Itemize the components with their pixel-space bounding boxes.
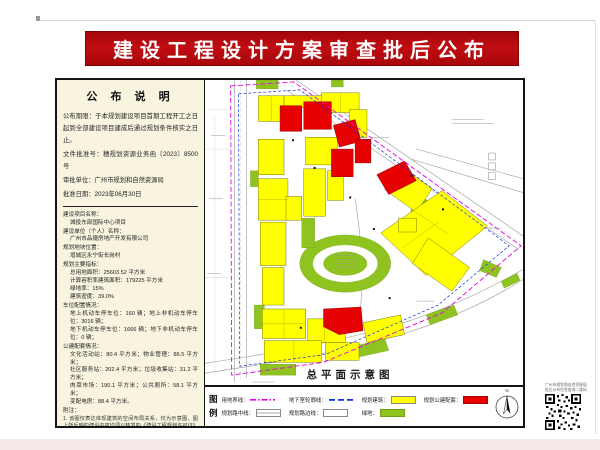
notice-item: 文件批准号：穗规划资源业务函〔2023〕8500 号	[63, 149, 198, 173]
banner: 建设工程设计方案审查批后公布	[85, 31, 519, 66]
notice-item: 公布期限：于本规划建设项目首期工程开工之日起到全部建设项目建成后通过规划条件核实…	[63, 111, 198, 147]
legend-item-basement: 地下室轮廓线：	[289, 396, 354, 404]
notice-item: 审批单位：广州市规划和自然资源局	[63, 175, 198, 187]
legend-title: 图例	[209, 393, 218, 419]
detail-line: 附注：	[63, 408, 198, 416]
boundary-line-swatch	[250, 396, 275, 404]
road-edgeline-swatch	[323, 409, 348, 417]
map-column: 总平面示意图 图例 用地界线： 地下室轮廓线： 规划建筑： 规划公建配	[205, 80, 523, 426]
project-details: 建设项目名称： 城投东部国际中心项目 建设单位（个人）名称： 广州市品捷房地产开…	[63, 206, 198, 426]
banner-title: 建设工程设计方案审查批后公布	[113, 34, 491, 63]
detail-line: 总用地面积：25603.52 平方米	[63, 270, 198, 278]
detail-line: 建设项目名称：	[63, 212, 198, 220]
panel-header: 公 布 说 明	[63, 88, 198, 104]
north-arrow-icon: N	[494, 386, 520, 427]
detail-line: 广州市品捷房地产开发有限公司	[63, 236, 198, 244]
site-plan-map: 总平面示意图	[205, 80, 523, 385]
detail-line: 公建配套情况：	[63, 344, 198, 352]
legend-item-boundary: 用地界线：	[222, 396, 281, 404]
detail-line: 绿地率：15%	[63, 286, 198, 294]
greenspace-swatch	[380, 409, 405, 417]
main-frame: 公 布 说 明 公布期限：于本规划建设项目首期工程开工之日起到全部建设项目建成后…	[55, 78, 525, 428]
detail-line: 车位配置情况：	[63, 303, 198, 311]
page-edge-right	[595, 20, 596, 434]
svg-text:N: N	[506, 388, 509, 393]
map-title: 总平面示意图	[260, 367, 440, 382]
road-centerline-swatch	[256, 409, 281, 417]
legend-item-building: 规划建筑：	[362, 396, 416, 404]
detail-line: 地下机动车停车位：1666 辆；地下非机动车停车位：0 辆；	[63, 327, 198, 343]
legend-item-road-edge: 规划路边线：	[289, 409, 354, 417]
detail-line: 文化活动站：80.4 平方米；物业管理：86.5 平方米；	[63, 352, 198, 368]
detail-line: 变配电房：88.4 平方米。	[63, 399, 198, 407]
detail-line: 增城区永宁街长岗村	[63, 253, 198, 261]
page-edge-mark	[36, 16, 40, 21]
legend-grid: 用地界线： 地下室轮廓线： 规划建筑： 规划公建配套： 规划路中线：	[222, 396, 489, 417]
qr-code-icon	[545, 394, 581, 430]
detail-line: 建筑密度：39.0%	[63, 294, 198, 302]
notice-item: 批准日期：2023年06月30日	[63, 189, 198, 201]
detail-line: 计算容积率建筑面积：179225 平方米	[63, 278, 198, 286]
detail-line: 城投东部国际中心项目	[63, 220, 198, 228]
basement-line-swatch	[329, 396, 354, 404]
legend-item-public: 规划公建配套：	[424, 396, 489, 404]
public-facility-swatch	[463, 396, 488, 404]
legend: 图例 用地界线： 地下室轮廓线： 规划建筑： 规划公建配套：	[205, 385, 523, 426]
detail-note: 1. 该图仅表达体现建筑的空间布局关系，仅为示意图，图上所反映的建设内容均须以核…	[63, 416, 198, 426]
detail-line: 社区服务站：202.4 平方米；垃圾收集站：31.2 平方米；	[63, 367, 198, 383]
detail-line: 地上机动车停车位：160 辆；地上非机动车停车位：3016 辆；	[63, 311, 198, 327]
qr-caption: 广州市规划和自然资源局 批后公布信息查询二维码	[545, 383, 591, 393]
legend-item-road-center: 规划路中线：	[222, 409, 281, 417]
detail-line: 肉菜市场：190.1 平方米；公共厕所：58.1 平方米；	[63, 383, 198, 399]
page-edge-top	[36, 20, 596, 21]
notice-section: 公布期限：于本规划建设项目首期工程开工之日起到全部建设项目建成后通过规划条件核实…	[63, 111, 198, 201]
site-plan-svg	[205, 80, 523, 385]
building-swatch	[391, 396, 416, 404]
legend-item-green: 绿地：	[362, 409, 416, 417]
page-bottom-strip	[0, 439, 600, 450]
announcement-panel: 公 布 说 明 公布期限：于本规划建设项目首期工程开工之日起到全部建设项目建成后…	[57, 80, 205, 426]
qr-block: 广州市规划和自然资源局 批后公布信息查询二维码	[545, 383, 591, 430]
